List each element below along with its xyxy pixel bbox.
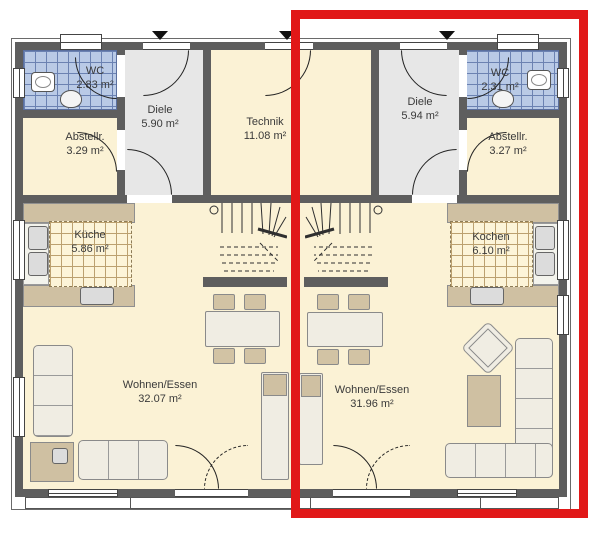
room-area: 5.90 m² bbox=[115, 117, 205, 131]
kitchen-counter bbox=[23, 203, 135, 223]
dining-table bbox=[205, 311, 280, 347]
tv-unit bbox=[263, 374, 287, 396]
stair-wall-left bbox=[203, 277, 287, 287]
room-label-wc-left: WC 2.83 m² bbox=[60, 64, 130, 92]
sill-tick bbox=[130, 497, 131, 509]
room-label-abstellraum-left: Abstellr. 3.29 m² bbox=[40, 130, 130, 158]
window bbox=[13, 377, 25, 437]
dining-chair bbox=[213, 348, 235, 364]
room-label-wohnen-essen-left: Wohnen/Essen 32.07 m² bbox=[85, 378, 235, 406]
room-area: 5.86 m² bbox=[45, 242, 135, 256]
window bbox=[13, 220, 25, 280]
wall bbox=[23, 110, 117, 118]
room-name: Abstellr. bbox=[40, 130, 130, 144]
kitchen-counter bbox=[23, 285, 135, 307]
door-opening-diele-left bbox=[127, 195, 172, 203]
room-name: Diele bbox=[115, 103, 205, 117]
toilet-icon bbox=[60, 90, 82, 108]
room-area: 3.29 m² bbox=[40, 144, 130, 158]
sofa bbox=[78, 440, 168, 480]
floor-plan-canvas: WC 2.83 m² Diele 5.90 m² Abstellr. 3.29 … bbox=[0, 0, 609, 537]
dining-chair bbox=[213, 294, 235, 310]
sink-icon bbox=[31, 72, 55, 92]
room-name: Wohnen/Essen bbox=[85, 378, 235, 392]
room-name: Küche bbox=[45, 228, 135, 242]
dining-chair bbox=[244, 348, 266, 364]
dining-chair bbox=[244, 294, 266, 310]
staircase-left bbox=[208, 203, 287, 277]
terrace-door-opening-left bbox=[175, 489, 248, 497]
room-label-diele-left: Diele 5.90 m² bbox=[115, 103, 205, 131]
entrance-marker-icon bbox=[152, 31, 168, 40]
room-area: 2.83 m² bbox=[60, 78, 130, 92]
entry-door-opening-left bbox=[143, 42, 190, 50]
room-label-kueche: Küche 5.86 m² bbox=[45, 228, 135, 256]
side-table-lamp bbox=[52, 448, 68, 464]
window bbox=[13, 68, 25, 98]
sofa bbox=[33, 345, 73, 437]
highlight-box bbox=[291, 10, 588, 518]
window bbox=[48, 489, 118, 497]
window bbox=[60, 34, 102, 50]
room-area: 32.07 m² bbox=[85, 392, 235, 406]
oven-icon bbox=[80, 287, 114, 305]
room-name: WC bbox=[60, 64, 130, 78]
